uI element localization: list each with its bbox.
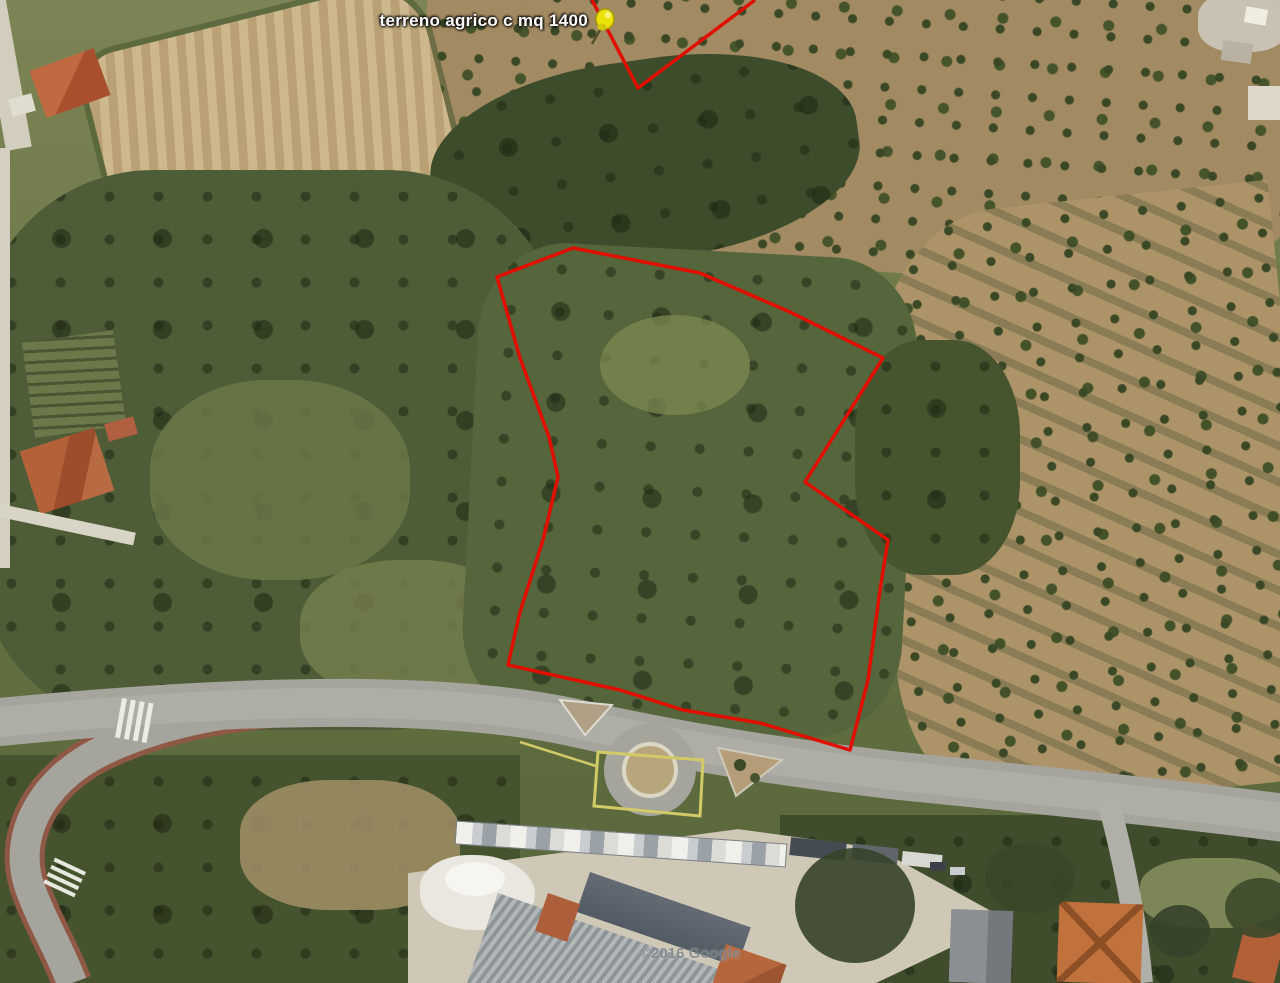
placemark-label[interactable]: terreno agrico c mq 1400 <box>380 11 588 31</box>
main-parcel-outline <box>497 248 888 750</box>
parcel-outline-overlay <box>0 0 1280 983</box>
satellite-map[interactable]: terreno agrico c mq 1400 ©2016 Google <box>0 0 1280 983</box>
pushpin-icon[interactable] <box>587 6 621 48</box>
google-watermark: ©2016 Google <box>640 945 740 962</box>
